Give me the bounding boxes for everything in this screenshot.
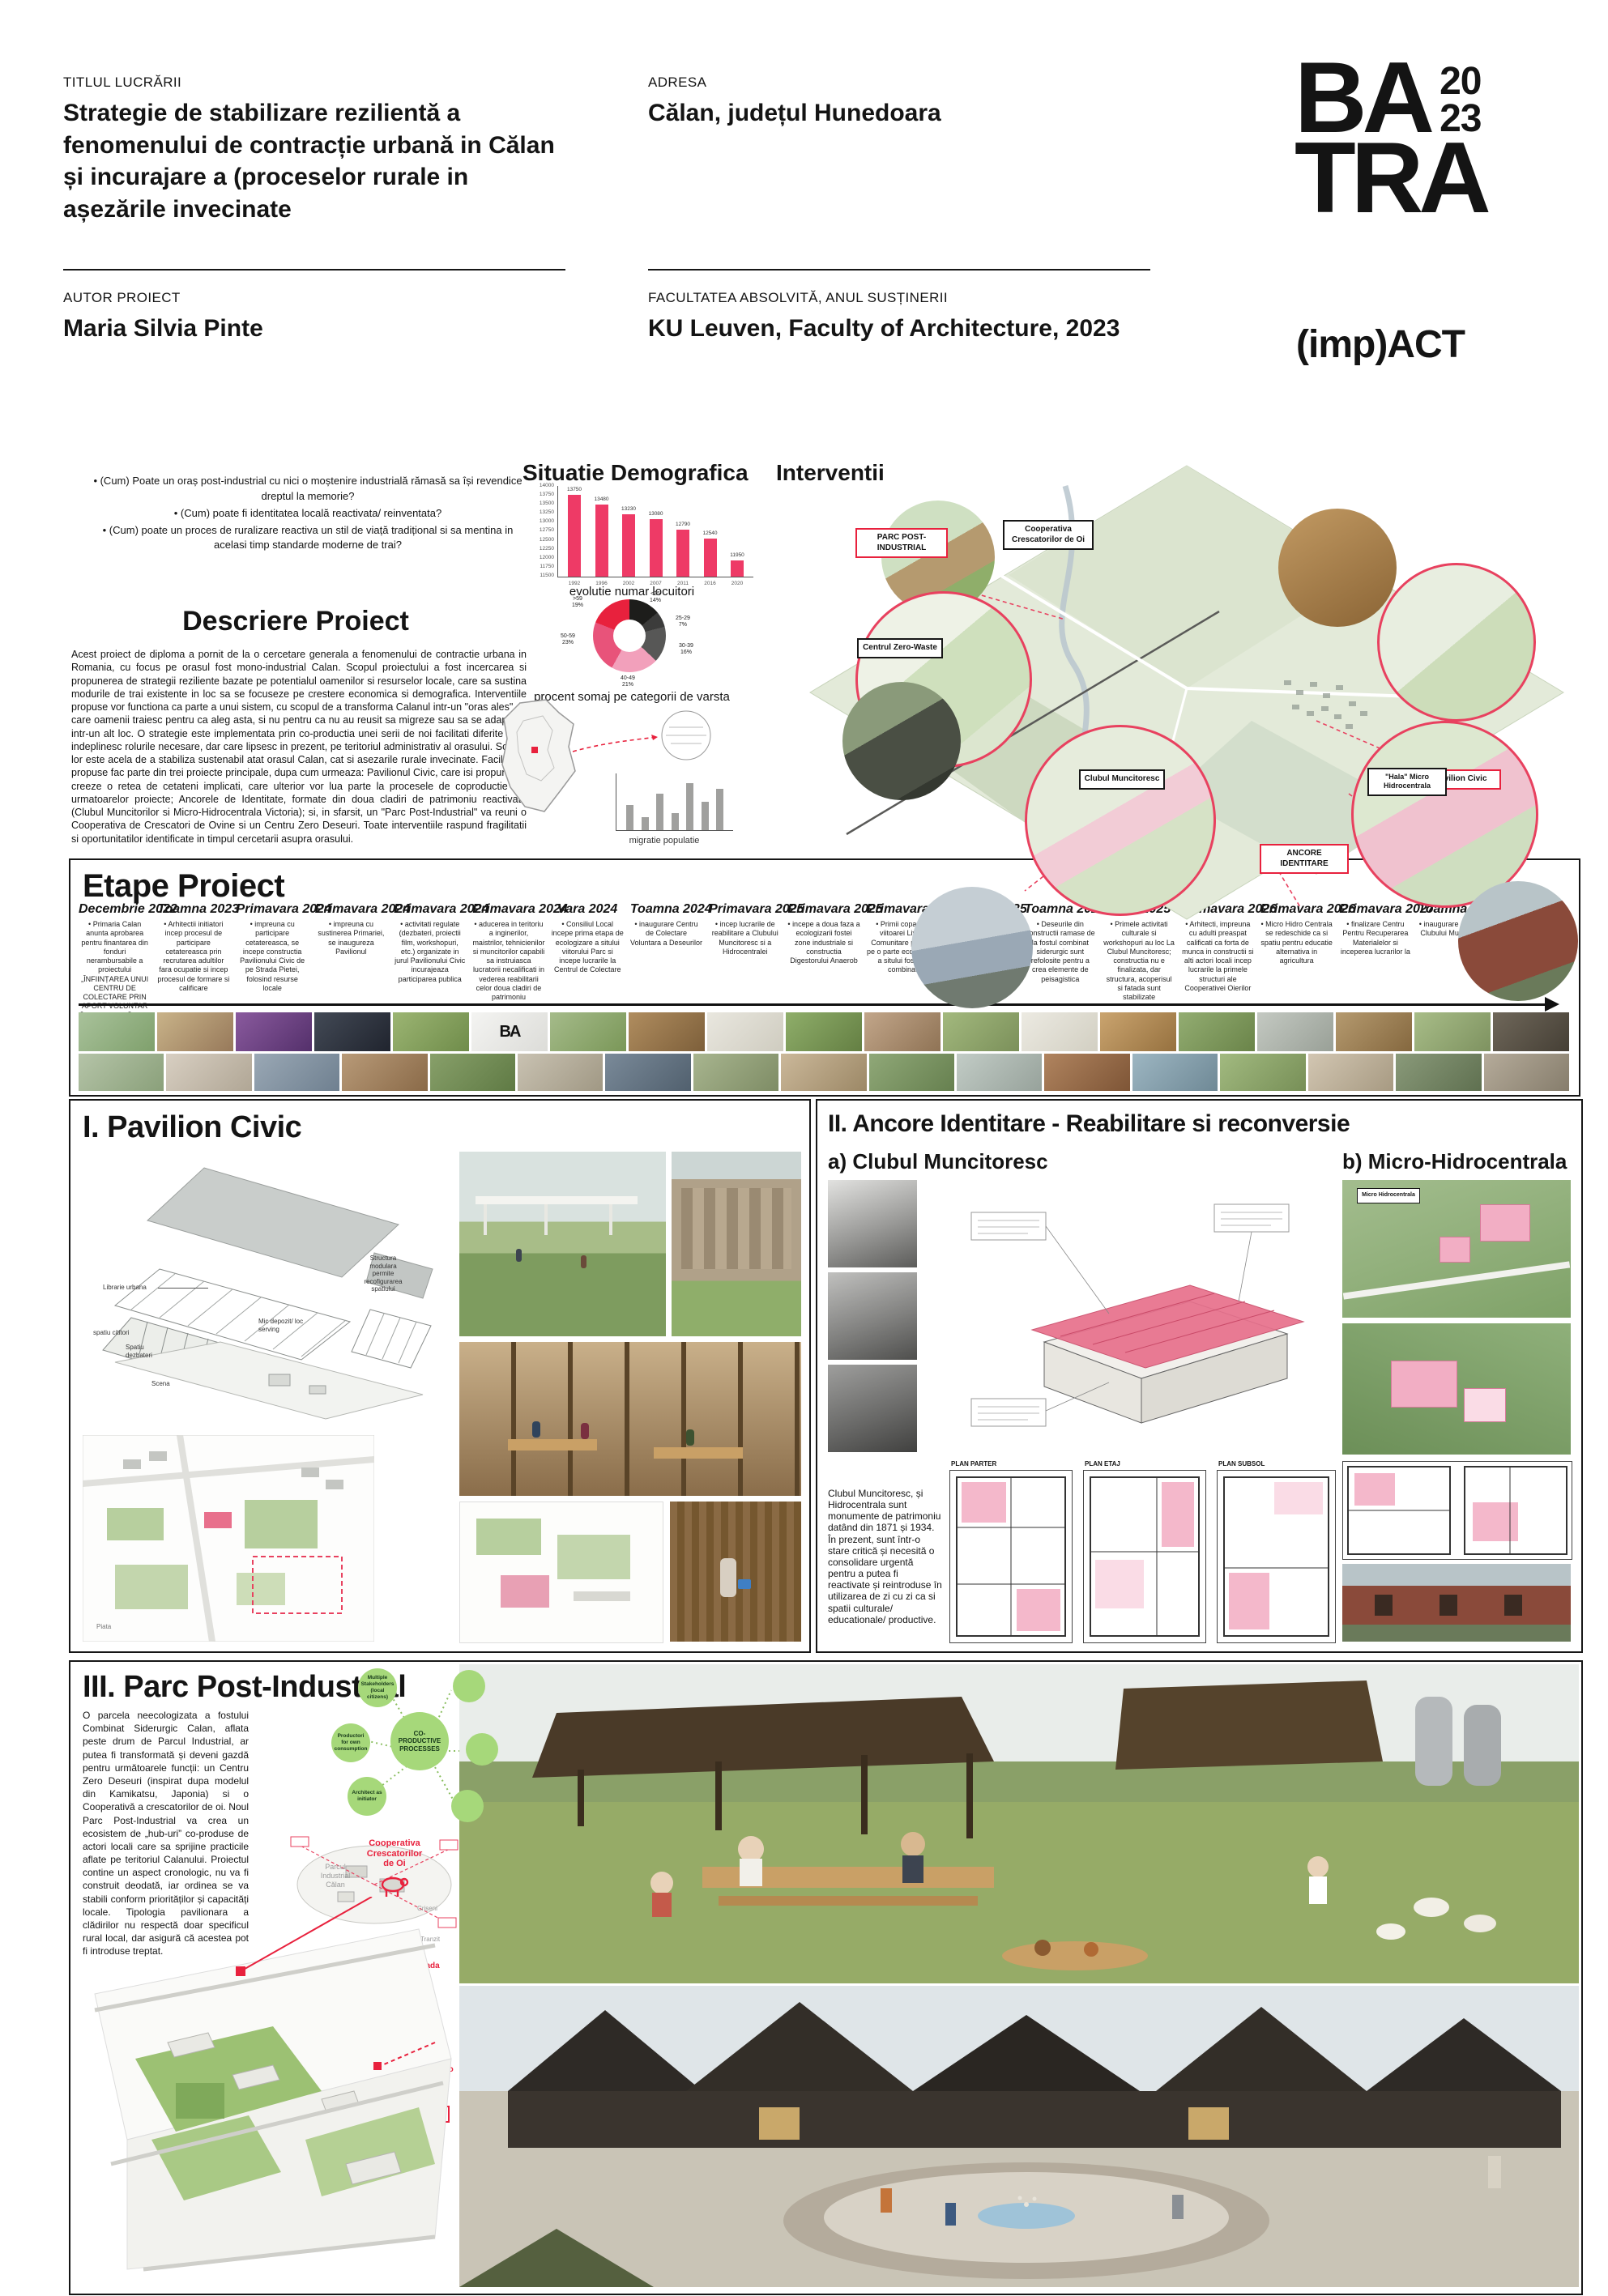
sub-micro-hidrocentrala: b) Micro-Hidrocentrala: [1342, 1149, 1567, 1174]
descriere-title: Descriere Proiect: [65, 606, 527, 637]
author-label: AUTOR PROIECT: [63, 290, 181, 306]
divider: [648, 269, 1150, 270]
etape-date: Decembrie 2022: [79, 902, 151, 917]
photo-watering-person: [670, 1502, 801, 1642]
etape-column: Toamna 2024 inaugurare Centru de Colecta…: [630, 902, 702, 948]
photo-pavilion-interior: [459, 1342, 801, 1496]
ytick: 11750: [540, 564, 554, 569]
bar: [716, 789, 723, 830]
photo-strip-1: BA: [79, 1012, 1569, 1051]
etape-date: Vara 2024: [552, 902, 624, 917]
etape-column: Primavara 2024 activitati regulate (dezb…: [394, 902, 466, 984]
parc-section: III. Parc Post-Industrial O parcela neec…: [69, 1660, 1583, 2295]
callout-clubul-muncitoresc: Clubul Muncitoresc: [1079, 769, 1165, 790]
donut-value: 14: [650, 598, 661, 604]
etape-date: Toamna 2024: [630, 902, 702, 917]
timeline-photo: [629, 1012, 705, 1051]
callout-cooperativa: Cooperativa Crescatorilor de Oi: [1003, 520, 1094, 550]
bar: [642, 817, 649, 830]
photo-heritage-3: [828, 1365, 917, 1452]
bubble-center: CO- PRODUCTIVE PROCESSES: [390, 1712, 449, 1770]
hidro-axon-1: Micro Hidrocentrala: [1342, 1180, 1571, 1318]
timeline-photo: [1308, 1054, 1393, 1091]
timeline-photo: [1100, 1012, 1176, 1051]
etape-text: Arhitectii initiatori incep procesul de …: [157, 920, 229, 993]
hidro-plan-circle: [1351, 721, 1538, 908]
bar: 137501992: [568, 495, 581, 577]
bar: 132302002: [622, 514, 635, 577]
render-courtyard: [459, 1986, 1579, 2287]
bar: 119502020: [731, 560, 744, 577]
mini-chart-caption: migratie populatie: [583, 836, 745, 846]
render-picnic: [459, 1664, 1579, 1983]
plan-etaj: [1083, 1470, 1206, 1643]
bubble-productori: Productori for own consumption: [331, 1723, 370, 1762]
bar: 125402016: [704, 539, 717, 577]
ytick: 12750: [540, 527, 554, 533]
etape-text: impreuna cu sustinerea Primariei, se ina…: [315, 920, 387, 956]
plan-title-parter: PLAN PARTER: [951, 1460, 996, 1467]
etape-text: inaugurare Centru de Colectare Voluntara…: [630, 920, 702, 948]
sub-clubul-muncitoresc: a) Clubul Muncitoresc: [828, 1149, 1048, 1174]
question: • (Cum) poate fi identitatea locală reac…: [93, 506, 522, 522]
leader-line: [158, 1288, 208, 1289]
etape-date: Primavara 2025: [709, 902, 781, 917]
etape-text: incep lucrarile de reabilitare a Clubulu…: [709, 920, 781, 956]
ytick: 13000: [540, 518, 554, 524]
pavilion-axon-drawing: [83, 1156, 451, 1431]
photo-pavilion-render: [459, 1152, 666, 1336]
address-label: ADRESA: [648, 75, 706, 91]
label-parc-industrial: Parcul Industrial Călan: [310, 1863, 360, 1889]
timeline-photo: [781, 1054, 866, 1091]
etape-column: Toamna 2023 Arhitectii initiatori incep …: [157, 902, 229, 993]
donut-value: 16: [679, 650, 693, 656]
donut-value: 23: [561, 640, 575, 646]
timeline-photo: [605, 1054, 690, 1091]
poster: TITLUL LUCRĂRII Strategie de stabilizare…: [0, 0, 1608, 2296]
etape-text: impreuna cu participare cetatereasca, se…: [237, 920, 309, 993]
author-name: Maria Silvia Pinte: [63, 313, 263, 345]
faculty: KU Leuven, Faculty of Architecture, 2023: [648, 313, 1120, 345]
photo-strip-2: [79, 1054, 1569, 1091]
street-photo-circle: [911, 887, 1033, 1008]
pavilion-title: I. Pavilion Civic: [83, 1110, 301, 1145]
ytick: 13750: [540, 492, 554, 497]
etape-date: Primavara 2024: [315, 902, 387, 917]
timeline-photo: [786, 1012, 862, 1051]
question: • (Cum) poate un proces de ruralizare re…: [93, 523, 522, 554]
label-piata: Piata: [96, 1623, 111, 1631]
label-scena: Scena: [151, 1380, 170, 1388]
hidro-axon-2: [1342, 1323, 1571, 1455]
label-librarie-urbana: Librarie urbana: [103, 1284, 160, 1292]
bubble-stakeholders: Multiple Stakeholders (local citizens): [358, 1668, 397, 1707]
logo-tra: TRA: [1295, 138, 1486, 219]
bar: [656, 794, 663, 831]
ytick: 13500: [540, 501, 554, 506]
etape-date: Primavara 2024: [472, 902, 544, 917]
hidro-photo-circle: [1458, 881, 1578, 1001]
callout-ancore-identitare: ANCORE IDENTITARE: [1260, 844, 1349, 874]
plan-title-etaj: PLAN ETAJ: [1085, 1460, 1120, 1467]
bubble-extra: [451, 1790, 484, 1822]
timeline-photo: [957, 1054, 1042, 1091]
demografie-title: Situatie Demografica: [522, 460, 741, 486]
photo-hidro-building: [1342, 1564, 1571, 1642]
calan-marker: [531, 747, 538, 753]
divider: [63, 269, 565, 270]
bubble-extra: [466, 1733, 498, 1766]
timeline-photo: BA: [471, 1012, 548, 1051]
timeline-photo: [157, 1012, 233, 1051]
callout-parc-post-industrial: PARC POST-INDUSTRIAL: [855, 528, 948, 558]
donut-label: >59: [572, 596, 583, 603]
timeline-photo: [1414, 1012, 1491, 1051]
plan-parter: [949, 1470, 1073, 1643]
etape-text: Consiliul Local incepe prima etapa de ec…: [552, 920, 624, 975]
timeline-photo: [1220, 1054, 1305, 1091]
etape-text: aducerea in teritoriu a inginerilor, mai…: [472, 920, 544, 1002]
etape-text: activitati regulate (dezbateri, proiecti…: [394, 920, 466, 984]
etape-column: Primavara 2024 impreuna cu sustinerea Pr…: [315, 902, 387, 956]
ancore-title: II. Ancore Identitare - Reabilitare si r…: [828, 1110, 1350, 1138]
unemployment-donut-chart: [593, 599, 666, 672]
ancore-section: II. Ancore Identitare - Reabilitare si r…: [816, 1099, 1583, 1653]
population-bar-chart: 1375019921348019961323020021308020071279…: [557, 486, 753, 577]
timeline-photo: [1257, 1012, 1333, 1051]
timeline-photo: [707, 1012, 783, 1051]
timeline-photo: [314, 1012, 390, 1051]
donut-label: <25: [650, 591, 661, 598]
bar: 134801996: [595, 505, 608, 577]
ytick: 14000: [540, 483, 554, 488]
donut-label: 30-39: [679, 643, 693, 650]
photo-logo-text: BA: [500, 1023, 520, 1042]
logo-year-top: 20: [1440, 63, 1481, 100]
ytick: 11500: [540, 573, 554, 578]
label-cooperativa-oi: Cooperativa Crescatorilor de Oi: [364, 1838, 425, 1869]
etape-date: Toamna 2023: [157, 902, 229, 917]
timeline-photo: [254, 1054, 339, 1091]
timeline-photo: [79, 1012, 155, 1051]
label-spatiu-cititori: spatiu cititori: [93, 1329, 134, 1337]
ytick: 12500: [540, 537, 554, 543]
callout-hala-micro-hidrocentrala: "Hala" Micro Hidrocentrala: [1367, 768, 1447, 796]
migration-mini-chart: [616, 773, 733, 831]
pavilion-site-plan: [83, 1435, 374, 1642]
donut-value: 19: [572, 603, 583, 609]
photo-heritage-2: [828, 1272, 917, 1360]
clubul-axon-drawing: [947, 1180, 1334, 1454]
etape-column: Primavara 2024 impreuna cu participare c…: [237, 902, 309, 993]
timeline-photo: [864, 1012, 940, 1051]
title-label: TITLUL LUCRĂRII: [63, 75, 181, 91]
timeline-photo: [342, 1054, 427, 1091]
timeline-photo: [943, 1012, 1019, 1051]
ancore-description: Clubul Muncitoresc, și Hidrocentrala sun…: [828, 1488, 943, 1625]
donut-value: 21: [621, 682, 635, 688]
etape-column: Primavara 2024 aducerea in teritoriu a i…: [472, 902, 544, 1002]
timeline-photo: [1396, 1054, 1481, 1091]
bar: [702, 802, 709, 830]
bar-chart-yaxis: 1400013750135001325013000127501250012250…: [525, 483, 554, 578]
ytick: 12000: [540, 555, 554, 560]
research-questions: • (Cum) Poate un oraș post-industrial cu…: [93, 474, 522, 555]
timeline-photo: [869, 1054, 954, 1091]
donut-label: 25-29: [676, 616, 690, 622]
donut-label: 50-59: [561, 633, 575, 640]
faculty-label: FACULTATEA ABSOLVITĂ, ANUL SUSȚINERII: [648, 290, 948, 306]
photo-heritage-1: [828, 1180, 917, 1267]
address: Călan, județul Hunedoara: [648, 97, 941, 130]
photo-masterplan: [459, 1502, 663, 1643]
timeline-photo: [1493, 1012, 1569, 1051]
timeline-photo: [1484, 1054, 1569, 1091]
timeline-photo: [236, 1012, 312, 1051]
donut-value: 7: [676, 622, 690, 628]
timeline-photo: [693, 1054, 778, 1091]
bar: 127902011: [676, 530, 689, 577]
hidro-plans: [1342, 1461, 1572, 1560]
hunedoara-county-outline: [496, 696, 581, 818]
unemployment-donut-block: <2514 25-297 30-3916 40-4921 50-5923 >59…: [559, 591, 705, 690]
question: • (Cum) Poate un oraș post-industrial cu…: [93, 474, 522, 505]
timeline-photo: [1044, 1054, 1129, 1091]
project-title: Strategie de stabilizare rezilientă a fe…: [63, 97, 574, 225]
bubble-architect: Architect as initiator: [348, 1777, 386, 1816]
timeline-photo: [166, 1054, 251, 1091]
bubble-extra: [453, 1670, 485, 1702]
etape-title: Etape Proiect: [83, 868, 284, 905]
impact-logo: (imp)ACT: [1296, 322, 1465, 367]
workshop-photo-circle: [1278, 509, 1397, 627]
callout-centrul-zero-waste: Centrul Zero-Waste: [857, 638, 943, 658]
ytick: 12250: [540, 546, 554, 552]
etape-column: Primavara 2025 incep lucrarile de reabil…: [709, 902, 781, 956]
bar: [672, 813, 679, 830]
zero-waste-photo-circle: [842, 682, 961, 800]
parc-axon-map: [79, 1897, 459, 2285]
bar: 130802007: [650, 519, 663, 577]
sheep-icon: [378, 1874, 412, 1898]
descriere-text: Acest proiect de diploma a pornit de la …: [71, 648, 527, 846]
etape-column: Vara 2024 Consiliul Local incepe prima e…: [552, 902, 624, 975]
ytick: 13250: [540, 509, 554, 515]
label-mic-depozit: Mic depozit/ loc serving: [258, 1318, 305, 1333]
bar: [686, 783, 693, 830]
timeline-photo: [1336, 1012, 1412, 1051]
timeline-photo: [430, 1054, 515, 1091]
timeline-photo: [518, 1054, 603, 1091]
etape-date: Primavara 2024: [237, 902, 309, 917]
clubul-plan-circle: [1025, 725, 1216, 916]
timeline-photo: [1022, 1012, 1098, 1051]
plan-subsol: [1217, 1470, 1336, 1643]
batra-logo: BA 20 23 TRA: [1295, 58, 1486, 219]
timeline-photo: [1132, 1054, 1218, 1091]
timeline-photo: [79, 1054, 164, 1091]
etape-date: Primavara 2024: [394, 902, 466, 917]
timeline-photo: [1179, 1012, 1255, 1051]
micro-hidro-label: Micro Hidrocentrala: [1357, 1188, 1420, 1203]
donut-label: 40-49: [621, 675, 635, 682]
bar: [626, 805, 633, 830]
label-spatiu-dezbateri: Spatiu dezbateri: [126, 1344, 166, 1359]
label-structura-modulara: Structura modulara permite recofigurarea…: [358, 1254, 408, 1293]
pavilion-plan-circle: [1377, 563, 1536, 722]
plan-title-subsol: PLAN SUBSOL: [1218, 1460, 1265, 1467]
timeline-photo: [550, 1012, 626, 1051]
photo-apartment-block: [672, 1152, 801, 1336]
pavilion-section: I. Pavilion Civic Structura modulara per…: [69, 1099, 811, 1653]
etape-column: Decembrie 2022 Primaria Calan anunta apr…: [79, 902, 151, 1020]
timeline-photo: [393, 1012, 469, 1051]
